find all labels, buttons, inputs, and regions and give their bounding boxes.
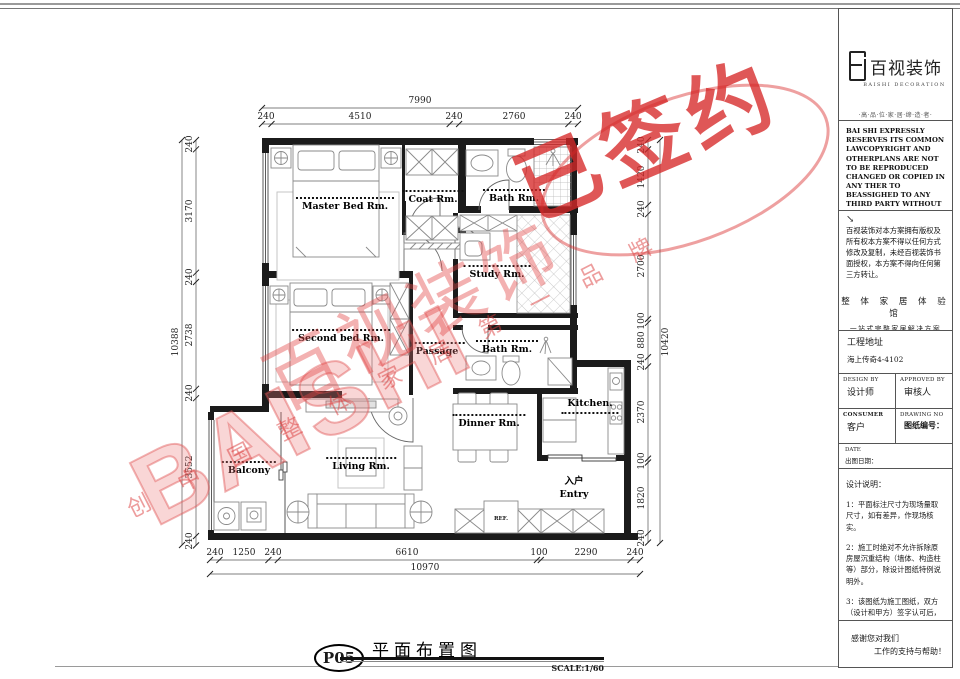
date-en: DATE (839, 444, 952, 453)
dim-right-total: 10420 (661, 328, 671, 357)
dim-right-seg: 240 (637, 529, 647, 546)
baishi-logo-icon (849, 51, 866, 81)
drawing-no-cn: 图纸编号： (900, 420, 948, 431)
dim-bottom-seg: 240 (626, 548, 643, 558)
panel-thanks-section: 感谢您对我们 工作的支持与帮助！ (839, 621, 952, 661)
thanks-line1: 感谢您对我们 (839, 621, 952, 644)
room-label-passage: Passage (416, 342, 459, 357)
panel-consumer-section: CONSUMER 客户 DRAWING NO 图纸编号： (839, 409, 952, 444)
entry-cabinets (455, 501, 604, 533)
dim-bottom-seg: 100 (530, 548, 547, 558)
design-by-en: DESIGN BY (843, 377, 891, 383)
dim-left-seg: 240 (185, 532, 195, 549)
legal-text-en: BAI SHI EXPRESSLY RESERVES ITS COMMON LA… (839, 121, 952, 211)
ref-label: REF. (494, 516, 508, 522)
dim-left-seg: 240 (185, 268, 195, 285)
arrow-icon: ↘ (839, 211, 952, 225)
design-note: 2：施工时绝对不允许拆除原房屋沉重结构（墙体、构造柱等）部分，除设计图纸特例说明… (839, 533, 952, 587)
design-note: 1：平面标注尺寸为现场量取尺寸，如有差异，作现场核实。 (839, 490, 952, 533)
dim-right-seg: 1420 (637, 166, 647, 189)
dim-bottom-seg: 240 (206, 548, 223, 558)
design-by-cn: 设计师 (843, 385, 891, 398)
approved-by-cell: APPROVED BY 审核人 (895, 374, 952, 408)
room-label-second: Second bed Rm. (298, 329, 384, 344)
logo-text-cn: 百视装饰 (870, 54, 942, 79)
drawing-no-cell: DRAWING NO 图纸编号： (895, 409, 952, 443)
date-cn: 出图日期： (839, 453, 952, 465)
room-label-living: Living Rm. (332, 457, 390, 472)
scale-label: SCALE:1/60 (470, 663, 604, 673)
room-label-bath1: Bath Rm. (489, 189, 539, 204)
dim-right-seg: 240 (637, 136, 647, 153)
dim-left-seg: 2738 (185, 324, 195, 347)
title-rule-thin (340, 661, 604, 662)
logo-text-en: BAISHI DECORATION (857, 82, 952, 88)
panel-legal-cn-section: ↘ 百视装饰对本方案拥有版权及所有权本方案不得以任何方式修改及复制，未经百视装饰… (839, 211, 952, 331)
address-value: 海上传奇4-4102 (839, 348, 952, 365)
room-label-kitchen: Kitchen. (567, 399, 612, 417)
panel-logo-section: 百视装饰 BAISHI DECORATION ·高·品·位·家·居·缔·造·者· (839, 9, 952, 121)
room-label-study: Study Rm. (470, 265, 525, 280)
thanks-line2: 工作的支持与帮助！ (839, 644, 952, 657)
room-label-master: Master Bed Rm. (302, 197, 388, 212)
dim-bottom-seg: 240 (264, 548, 281, 558)
dim-top-seg: 240 (564, 112, 581, 122)
balcony-fixtures (214, 502, 266, 530)
panel-designby-section: DESIGN BY 设计师 APPROVED BY 审核人 (839, 374, 952, 409)
dim-right-seg: 100 (637, 312, 647, 329)
dim-right-seg: 240 (637, 353, 647, 370)
panel-address-section: 工程地址 海上传奇4-4102 (839, 331, 952, 374)
address-label: 工程地址 (839, 331, 952, 348)
panel-notes-section: 设计说明： 1：平面标注尺寸为现场量取尺寸，如有差异，作现场核实。 2：施工时绝… (839, 469, 952, 621)
dim-right-seg: 240 (637, 200, 647, 217)
slogan-line2: 一站式完整家居解决方案 (839, 323, 952, 331)
study-furniture (460, 215, 570, 313)
dim-left-total: 10388 (171, 328, 181, 357)
dim-left-seg: 240 (185, 384, 195, 401)
title-block-panel: 百视装饰 BAISHI DECORATION ·高·品·位·家·居·缔·造·者·… (838, 8, 953, 668)
consumer-en: CONSUMER (843, 412, 891, 418)
dim-right-seg: 2700 (637, 255, 647, 278)
dim-right-seg: 880 (637, 331, 647, 348)
drawing-no-en: DRAWING NO (900, 412, 948, 418)
title-rule-thick (340, 657, 604, 660)
room-label-coat: Coat Rm. (408, 190, 457, 205)
dim-top-seg: 4510 (349, 112, 372, 122)
consumer-cn: 客户 (843, 420, 891, 433)
dim-bottom-seg: 6610 (396, 548, 419, 558)
slogan-line1: 整 体 家 居 体 验 馆 (839, 295, 952, 319)
approved-by-cn: 审核人 (900, 385, 948, 398)
dim-left-seg: 3552 (185, 456, 195, 479)
dim-right-seg: 1820 (637, 487, 647, 510)
panel-legal-en-section: BAI SHI EXPRESSLY RESERVES ITS COMMON LA… (839, 121, 952, 211)
dim-right-seg: 2370 (637, 401, 647, 424)
room-label-bath2: Bath Rm. (482, 340, 532, 355)
room-label-entry: 入户Entry (559, 475, 588, 502)
master-bed-furniture (271, 145, 401, 280)
dim-bottom-seg: 2290 (575, 548, 598, 558)
drawing-sheet: 7990 240 4510 240 2760 240 10388 240 317… (0, 0, 960, 679)
legal-text-cn: 百视装饰对本方案拥有版权及所有权本方案不得以任何方式修改及复制，未经百视装饰书面… (839, 225, 952, 282)
dim-left-seg: 240 (185, 135, 195, 152)
dim-top-seg: 240 (257, 112, 274, 122)
dim-left-seg: 3170 (185, 200, 195, 223)
room-label-dinner: Dinner Rm. (458, 414, 519, 429)
panel-date-section: DATE 出图日期： (839, 444, 952, 469)
logo-tagline: ·高·品·位·家·居·缔·造·者· (839, 110, 952, 119)
design-note: 3：该图纸为施工图纸，双方（设计和甲方）签字认可后，方可作为施工依据。 (839, 587, 952, 621)
consumer-cell: CONSUMER 客户 (839, 409, 895, 443)
approved-by-en: APPROVED BY (900, 377, 948, 383)
sheet-title-bar: P05 平面布置图 SCALE:1/60 (300, 636, 630, 672)
notes-title: 设计说明： (839, 469, 952, 490)
design-by-cell: DESIGN BY 设计师 (839, 374, 895, 408)
room-label-balcony: Balcony (228, 461, 270, 476)
dim-bottom-total: 10970 (411, 563, 440, 573)
dim-top-seg: 2760 (503, 112, 526, 122)
dim-top-total: 7990 (409, 96, 432, 106)
dim-top-seg: 240 (445, 112, 462, 122)
dim-bottom-seg: 1250 (233, 548, 256, 558)
dim-right-seg: 100 (637, 452, 647, 469)
